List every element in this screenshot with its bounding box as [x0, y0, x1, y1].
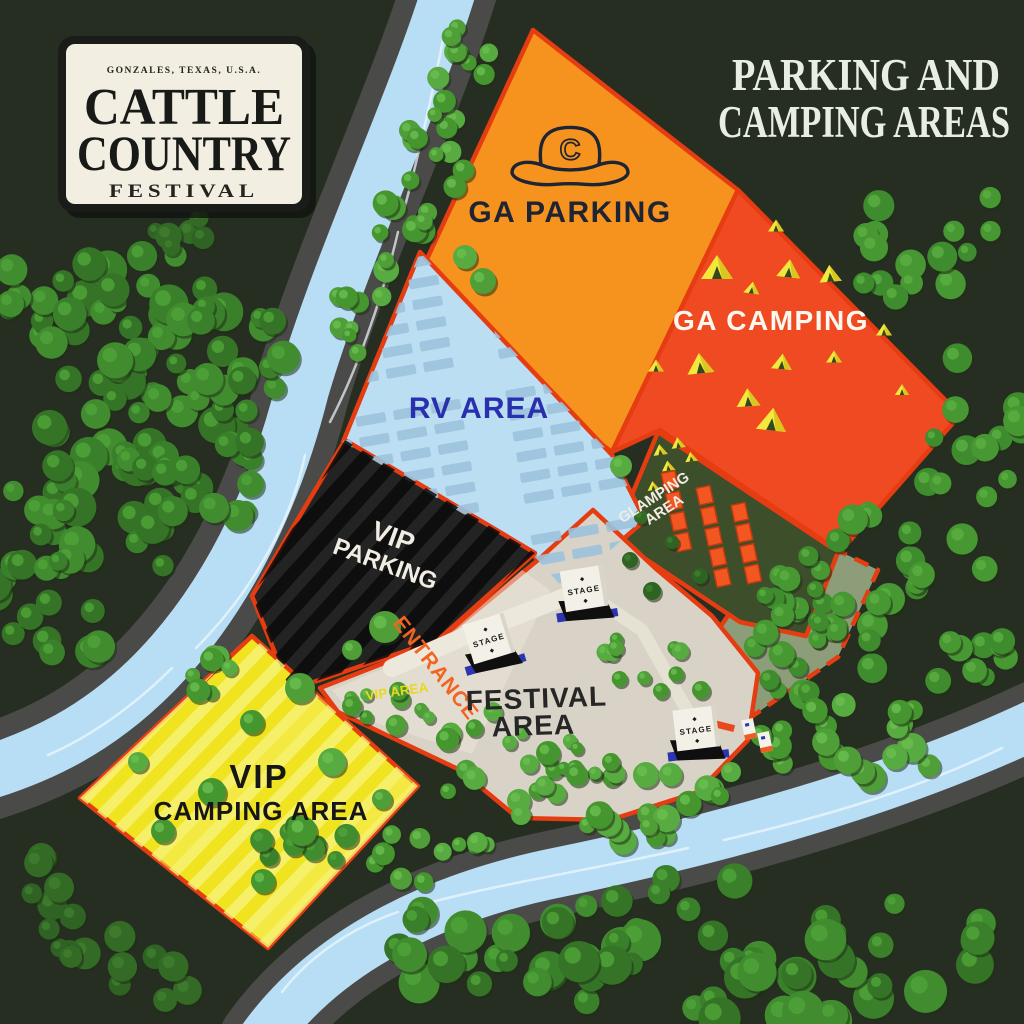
festival-map: STAGESTAGESTAGE C GA PARKING GA CAMPING … — [0, 0, 1024, 1024]
logo-badge: GONZALES, TEXAS, U.S.A. CATTLE COUNTRY F… — [58, 36, 316, 218]
ga-camping-label: GA CAMPING — [673, 305, 869, 336]
map-title-line1: PARKING AND — [732, 50, 1000, 100]
logo-name-line2: COUNTRY — [77, 125, 291, 181]
festival-label-line2: AREA — [491, 709, 575, 743]
logo-location: GONZALES, TEXAS, U.S.A. — [107, 66, 261, 76]
svg-text:C: C — [560, 135, 581, 167]
vip-camping-label-line1: VIP — [229, 758, 288, 795]
ga-parking-label: GA PARKING — [468, 196, 671, 229]
map-title-line2: CAMPING AREAS — [718, 97, 1010, 147]
map-title: PARKING AND CAMPING AREAS — [718, 50, 1010, 147]
rv-area-label: RV AREA — [409, 392, 549, 425]
vip-camping-label-line2: CAMPING AREA — [154, 796, 369, 826]
logo-name-line3: FESTIVAL — [109, 181, 259, 202]
